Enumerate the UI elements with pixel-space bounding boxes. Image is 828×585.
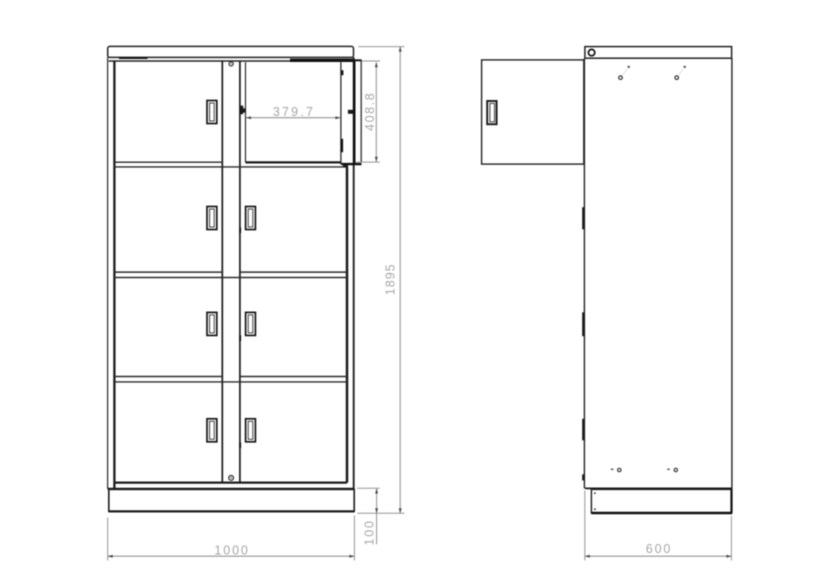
svg-text:1895: 1895: [384, 263, 398, 295]
svg-text:100: 100: [363, 519, 377, 545]
svg-text:600: 600: [646, 542, 673, 556]
svg-text:379.7: 379.7: [273, 105, 315, 119]
svg-text:408.8: 408.8: [363, 92, 377, 131]
svg-text:1000: 1000: [214, 544, 249, 558]
